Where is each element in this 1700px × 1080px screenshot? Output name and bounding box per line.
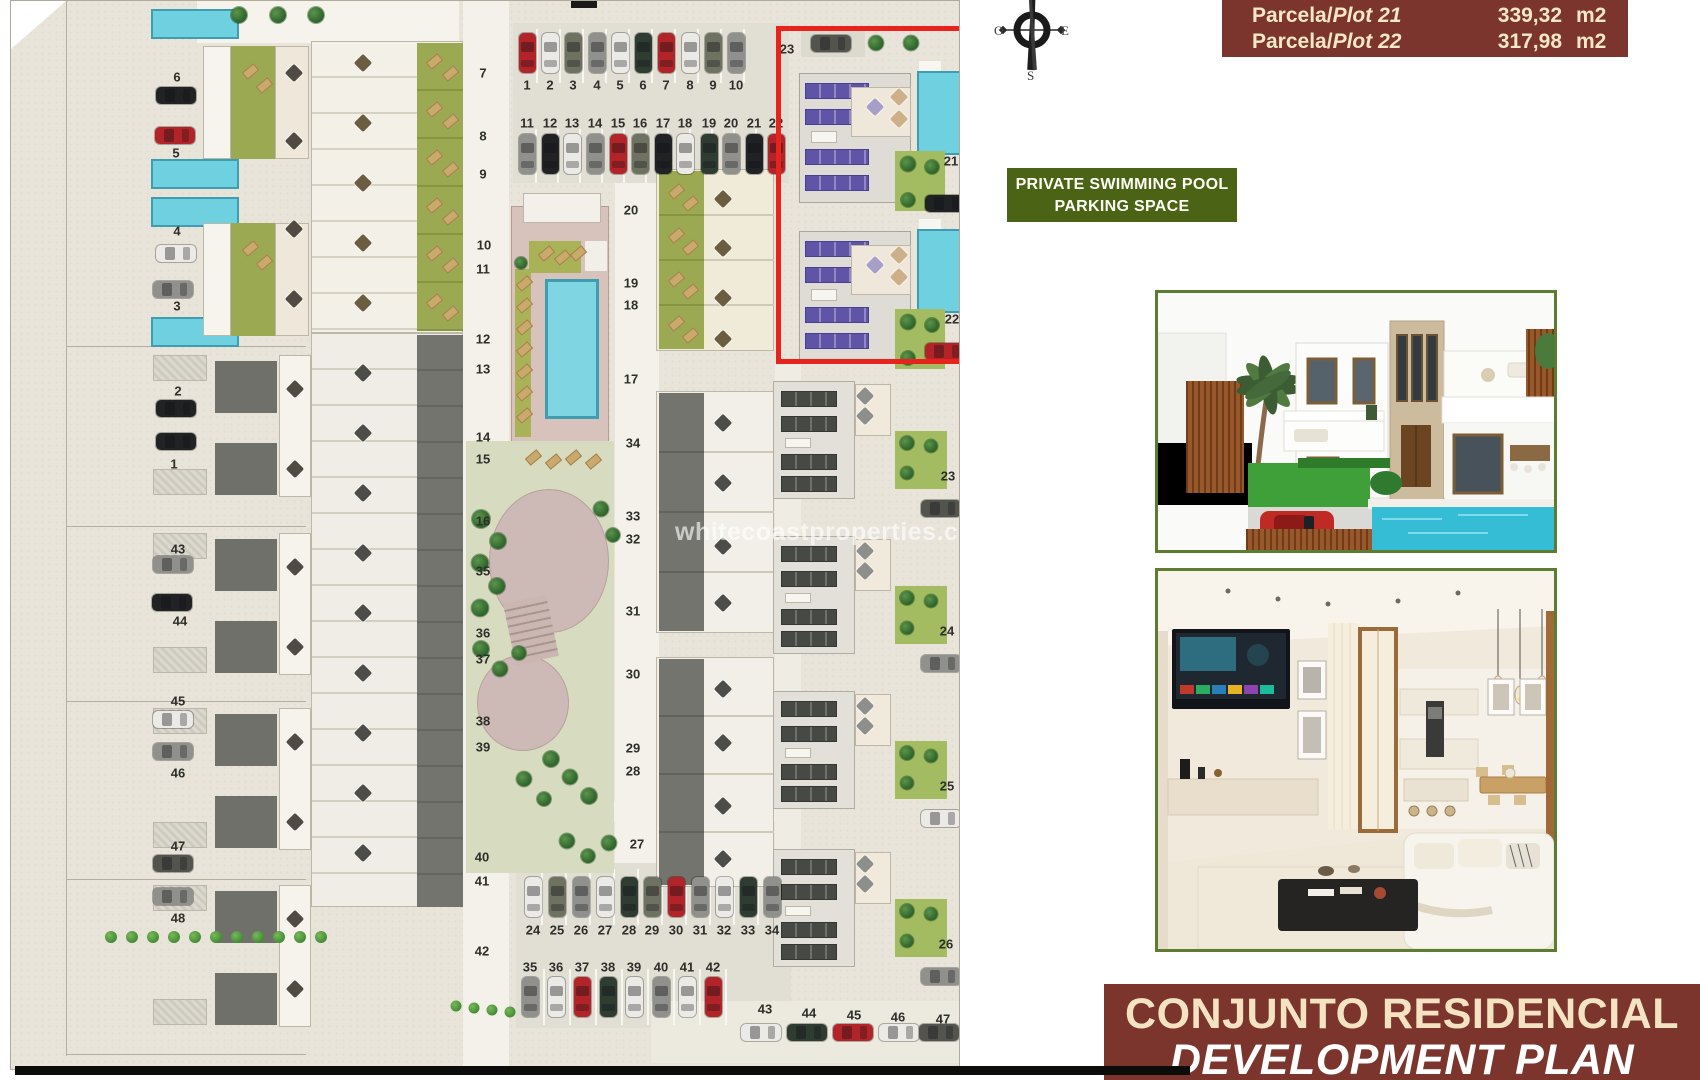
villa-exterior-illustration: [1158, 293, 1554, 550]
tree-icon: [900, 904, 914, 918]
plot-number: 41: [680, 960, 694, 975]
car-icon: [153, 556, 193, 573]
amenity-label: PRIVATE SWIMMING POOL PARKING SPACE: [1007, 168, 1237, 222]
car-icon: [833, 1024, 873, 1041]
plot-number: 26: [939, 937, 953, 952]
plot-number: 10: [729, 78, 743, 93]
roof-hatch: [785, 593, 811, 603]
site-plan: 6543214344454647487891011121314151635363…: [10, 0, 960, 1070]
black-mark: [571, 1, 597, 8]
car-icon: [705, 977, 722, 1017]
solar-panel-dark: [781, 476, 837, 492]
car-icon: [682, 33, 699, 73]
plot-number: 17: [624, 372, 638, 387]
plot-number: 31: [626, 604, 640, 619]
tree-icon: [512, 646, 526, 660]
plot-number: 15: [611, 116, 625, 131]
car-icon: [612, 33, 629, 73]
plot-number: 5: [172, 146, 179, 161]
garden-dark: [215, 539, 277, 591]
tree-icon: [925, 440, 938, 453]
car-icon: [600, 977, 617, 1017]
roof-hatch: [785, 906, 811, 916]
car-icon: [156, 245, 196, 262]
car-icon: [740, 877, 757, 917]
tree-icon: [560, 834, 575, 849]
car-icon: [764, 877, 781, 917]
garden-dark: [215, 621, 277, 673]
tree-icon: [581, 849, 595, 863]
car-icon: [741, 1024, 781, 1041]
tree-icon: [489, 578, 505, 594]
car-icon: [156, 433, 196, 450]
car-icon: [716, 877, 733, 917]
garden-dark: [215, 443, 277, 495]
tree-icon: [602, 836, 617, 851]
plot-number: 38: [601, 960, 615, 975]
tree-icon: [515, 257, 527, 269]
plot-number: 30: [669, 923, 683, 938]
plot-number: 12: [476, 332, 490, 347]
plot-number: 26: [574, 923, 588, 938]
plot-label-italic: Plot 21: [1333, 4, 1402, 27]
bush-icon: [231, 931, 243, 943]
plot-label: Parcela/: [1252, 30, 1333, 53]
car-icon: [621, 877, 638, 917]
tree-icon: [490, 533, 506, 549]
row-lines: [704, 659, 774, 885]
plot-number: 37: [575, 960, 589, 975]
boundary: [66, 701, 306, 702]
car-icon: [653, 977, 670, 1017]
site-boundary-line: [15, 1066, 1190, 1075]
bush-icon: [189, 931, 201, 943]
communal-pool: [545, 279, 599, 419]
plot-number: 14: [476, 430, 490, 445]
tree-icon: [901, 935, 914, 948]
plot-number: 18: [678, 116, 692, 131]
villa-interior-illustration: [1158, 571, 1554, 949]
tree-icon: [270, 7, 286, 23]
amenity-line2: PARKING SPACE: [1007, 196, 1237, 218]
plot-number: 19: [624, 276, 638, 291]
plot-number: 17: [656, 116, 670, 131]
plot-number: 36: [476, 626, 490, 641]
plot-number: 20: [724, 116, 738, 131]
parking-pad: [153, 647, 207, 673]
villa-stone-tower: [1390, 321, 1444, 501]
car-icon: [155, 127, 195, 144]
plot-number: 33: [626, 509, 640, 524]
plot-number: 5: [616, 78, 623, 93]
bush-icon: [315, 931, 327, 943]
title-banner: CONJUNTO RESIDENCIAL DEVELOPMENT PLAN: [1104, 984, 1700, 1080]
car-icon: [679, 977, 696, 1017]
bush-icon: [294, 931, 306, 943]
bush-icon: [487, 1005, 498, 1016]
tree-icon: [900, 436, 914, 450]
solar-panel-dark: [781, 416, 837, 432]
plot-number: 20: [624, 203, 638, 218]
plot-number: 35: [476, 564, 490, 579]
plot-number: 6: [639, 78, 646, 93]
plot-number: 8: [686, 78, 693, 93]
car-icon: [549, 877, 566, 917]
plot-number: 15: [476, 452, 490, 467]
car-icon: [589, 33, 606, 73]
car-icon: [525, 877, 542, 917]
plot-number: 37: [476, 652, 490, 667]
tree-icon: [901, 467, 914, 480]
car-icon: [668, 877, 685, 917]
plot-number: 29: [645, 923, 659, 938]
bush-icon: [252, 931, 264, 943]
car-icon: [156, 400, 196, 417]
garden-column: [659, 659, 704, 885]
boundary: [66, 1, 67, 1056]
garden-dark: [215, 973, 277, 1025]
plot-number: 25: [550, 923, 564, 938]
car-icon: [921, 968, 960, 985]
solar-panel-dark: [781, 764, 837, 780]
bush-icon: [147, 931, 159, 943]
banner-title-en: DEVELOPMENT PLAN: [1104, 1036, 1700, 1080]
plot-number: 42: [475, 944, 489, 959]
plot-number: 40: [475, 850, 489, 865]
tree-icon: [925, 908, 938, 921]
car-icon: [692, 877, 709, 917]
tree-icon: [900, 746, 914, 760]
banner-title-es: CONJUNTO RESIDENCIAL: [1104, 990, 1700, 1039]
plot-number: 18: [624, 298, 638, 313]
tree-icon: [563, 770, 578, 785]
car-icon: [565, 33, 582, 73]
plot-number: 25: [940, 779, 954, 794]
amenity-line1: PRIVATE SWIMMING POOL: [1007, 174, 1237, 196]
table-row: Parcela/Plot 22 317,98 m2: [1222, 29, 1628, 55]
tree-icon: [925, 595, 938, 608]
compass-south: S: [1027, 68, 1034, 83]
car-icon: [153, 888, 193, 905]
car-icon: [156, 87, 196, 104]
patio: [275, 223, 309, 336]
curtain: [1328, 623, 1358, 829]
tree-icon: [493, 662, 508, 677]
car-icon: [153, 281, 193, 298]
plot-number: 44: [802, 1006, 816, 1021]
bush-icon: [273, 931, 285, 943]
front-fence: [1246, 529, 1374, 550]
roof-hatch: [785, 748, 811, 758]
plot-number: 47: [171, 839, 185, 854]
villa-right-wing: [1442, 329, 1554, 498]
parking-pad: [153, 355, 207, 381]
plot-number: 14: [588, 116, 602, 131]
sofa: [1404, 833, 1554, 949]
car-icon: [522, 977, 539, 1017]
plot-number: 46: [171, 766, 185, 781]
tree-icon: [537, 792, 551, 806]
tree-icon: [606, 528, 620, 542]
car-icon: [597, 877, 614, 917]
plot-number: 3: [173, 299, 180, 314]
plot-number: 7: [479, 66, 486, 81]
car-icon: [519, 134, 536, 174]
plot-label: Parcela/: [1252, 4, 1333, 27]
building: [279, 885, 311, 1027]
plot-number: 13: [476, 362, 490, 377]
plot-number: 21: [747, 116, 761, 131]
plot-number: 8: [479, 129, 486, 144]
bush-icon: [105, 931, 117, 943]
plot-number: 11: [476, 262, 490, 277]
compass-west: O: [994, 23, 1003, 38]
car-icon: [573, 877, 590, 917]
plot-number: 42: [706, 960, 720, 975]
garden-dark: [215, 891, 277, 943]
plot-number: 11: [520, 116, 534, 131]
plot-number: 16: [633, 116, 647, 131]
plot-number: 31: [693, 923, 707, 938]
patch: [585, 241, 607, 271]
tree-icon: [581, 788, 597, 804]
solar-panel-dark: [781, 701, 837, 717]
interior-render-photo: [1155, 568, 1557, 952]
development-plan-page: 6543214344454647487891011121314151635363…: [0, 0, 1700, 1080]
plot-number: 29: [626, 741, 640, 756]
watermark-text: whitecoastproperties.co: [675, 518, 960, 547]
solar-panel-dark: [781, 571, 837, 587]
car-icon: [153, 855, 193, 872]
tree-icon: [925, 750, 938, 763]
car-icon: [921, 810, 960, 827]
plot-number: 24: [526, 923, 540, 938]
private-pool: [151, 9, 239, 39]
side-fence: [1186, 381, 1244, 493]
plot-number: 41: [475, 874, 489, 889]
bush-icon: [469, 1003, 480, 1014]
plot-area-unit: m2: [1576, 4, 1606, 28]
plot-number: 27: [598, 923, 612, 938]
car-icon: [658, 33, 675, 73]
parking-pad: [153, 469, 207, 495]
plot-number: 39: [476, 740, 490, 755]
car-icon: [701, 134, 718, 174]
plot-number: 6: [173, 70, 180, 85]
plot-number: 24: [940, 624, 954, 639]
tree-icon: [472, 600, 489, 617]
car-icon: [153, 711, 193, 728]
row-lines: [704, 393, 774, 631]
plot-number: 28: [622, 923, 636, 938]
plot-number: 48: [171, 911, 185, 926]
solar-panel-dark: [781, 859, 837, 875]
pavilion: [523, 193, 601, 223]
bush-icon: [168, 931, 180, 943]
car-icon: [542, 33, 559, 73]
lawn-column: [417, 43, 463, 331]
car-icon: [152, 594, 192, 611]
solar-panel-dark: [781, 609, 837, 625]
plot-number: 34: [765, 923, 779, 938]
plot-number: 33: [741, 923, 755, 938]
parking-pad: [153, 999, 207, 1025]
plot-number: 7: [662, 78, 669, 93]
tree-icon: [594, 502, 609, 517]
car-icon: [635, 33, 652, 73]
car-icon: [153, 743, 193, 760]
plot-number: 23: [941, 469, 955, 484]
plot-number: 2: [174, 384, 181, 399]
plot-number: 3: [569, 78, 576, 93]
plot-number: 9: [479, 167, 486, 182]
plot-number: 44: [173, 614, 187, 629]
solar-panel-dark: [781, 454, 837, 470]
paved-circle: [477, 655, 569, 751]
plot-size-table: Parcela/Plot 21 339,32 m2 Parcela/Plot 2…: [1222, 0, 1628, 57]
tree-icon: [517, 772, 532, 787]
plot-area-value: 317,98: [1467, 30, 1562, 54]
car-icon: [879, 1024, 919, 1041]
bush-icon: [210, 931, 222, 943]
plot-number: 38: [476, 714, 490, 729]
tree-icon: [543, 751, 559, 767]
plot-number: 36: [549, 960, 563, 975]
car-icon: [564, 134, 581, 174]
garden-column: [417, 335, 463, 907]
car-icon: [921, 655, 960, 672]
solar-panel-dark: [781, 786, 837, 802]
plot-number: 13: [565, 116, 579, 131]
car-icon: [632, 134, 649, 174]
car-icon: [728, 33, 745, 73]
car-icon: [610, 134, 627, 174]
plot-number: 4: [593, 78, 600, 93]
pool: [1368, 499, 1554, 550]
car-icon: [587, 134, 604, 174]
car-icon: [677, 134, 694, 174]
roof-hatch: [785, 438, 811, 448]
plot-number: 32: [717, 923, 731, 938]
plot-number: 46: [891, 1010, 905, 1025]
tree-icon: [231, 7, 247, 23]
compass-icon: O E S: [992, 0, 1072, 84]
plot-number: 19: [702, 116, 716, 131]
plot-number: 35: [523, 960, 537, 975]
bush-icon: [451, 1001, 462, 1012]
bush-icon: [126, 931, 138, 943]
car-icon: [626, 977, 643, 1017]
plot-number: 16: [476, 514, 490, 529]
boundary: [66, 879, 306, 880]
highlight-box-plots-21-22: [776, 26, 960, 364]
plot-number: 2: [546, 78, 553, 93]
plot-number: 10: [477, 238, 491, 253]
car-icon: [574, 977, 591, 1017]
plot-area-value: 339,32: [1467, 4, 1562, 28]
solar-panel-dark: [781, 726, 837, 742]
plot-area-unit: m2: [1576, 30, 1606, 54]
tree-icon: [900, 591, 914, 605]
plot-label-italic: Plot 22: [1333, 30, 1402, 53]
tree-icon: [901, 777, 914, 790]
garden-column: [659, 393, 704, 631]
tree-icon: [308, 7, 324, 23]
plot-number: 27: [630, 837, 644, 852]
building: [203, 46, 231, 159]
plot-number: 28: [626, 764, 640, 779]
tree-icon: [901, 622, 914, 635]
solar-panel-dark: [781, 546, 837, 562]
plot-number: 43: [758, 1002, 772, 1017]
compass-east: E: [1061, 23, 1069, 38]
plot-number: 30: [626, 667, 640, 682]
plot-number: 32: [626, 532, 640, 547]
building: [203, 223, 231, 336]
table-row: Parcela/Plot 21 339,32 m2: [1222, 3, 1628, 29]
plot-number: 45: [171, 694, 185, 709]
plot-number: 45: [847, 1008, 861, 1023]
solar-panel-dark: [781, 391, 837, 407]
car-icon: [787, 1024, 827, 1041]
car-icon: [655, 134, 672, 174]
garden-dark: [215, 714, 277, 766]
exterior-render-photo: [1155, 290, 1557, 553]
plan-corner-cut: [11, 1, 66, 49]
plot-number: 34: [626, 436, 640, 451]
car-icon: [548, 977, 565, 1017]
car-icon: [519, 33, 536, 73]
plot-number: 4: [173, 224, 180, 239]
plot-number: 39: [627, 960, 641, 975]
tv-icon: [1172, 629, 1290, 709]
solar-panel-dark: [781, 631, 837, 647]
solar-panel-dark: [781, 944, 837, 960]
plot-number: 40: [654, 960, 668, 975]
solar-panel-dark: [781, 922, 837, 938]
car-icon: [723, 134, 740, 174]
bush-icon: [505, 1007, 516, 1018]
private-pool: [151, 159, 239, 189]
car-icon: [542, 134, 559, 174]
car-icon: [746, 134, 763, 174]
boundary: [66, 526, 306, 527]
plot-number: 1: [170, 457, 177, 472]
boundary: [66, 1054, 306, 1055]
car-icon: [921, 500, 960, 517]
garden-dark: [215, 361, 277, 413]
car-icon: [705, 33, 722, 73]
plot-number: 12: [543, 116, 557, 131]
car-icon: [644, 877, 661, 917]
plot-number: 43: [171, 542, 185, 557]
solar-panel-dark: [781, 884, 837, 900]
plot-number: 47: [936, 1012, 950, 1027]
garden-dark: [215, 796, 277, 848]
plot-number: 1: [523, 78, 530, 93]
plot-number: 9: [709, 78, 716, 93]
